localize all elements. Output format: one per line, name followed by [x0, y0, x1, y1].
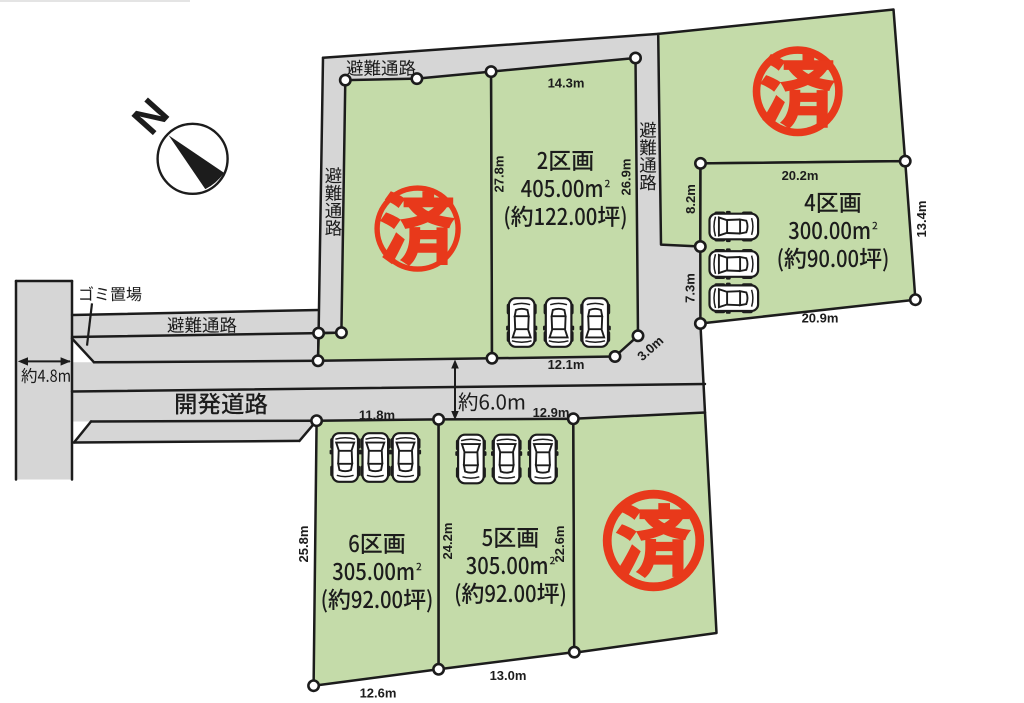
svg-text:13.0m: 13.0m — [490, 668, 527, 683]
svg-text:27.8m: 27.8m — [491, 156, 506, 193]
svg-text:12.1m: 12.1m — [548, 357, 585, 372]
svg-text:20.9m: 20.9m — [802, 311, 839, 326]
svg-text:26.9m: 26.9m — [619, 159, 634, 196]
svg-text:24.2m: 24.2m — [440, 523, 455, 560]
svg-text:13.4m: 13.4m — [914, 201, 929, 238]
svg-text:11.8m: 11.8m — [359, 408, 395, 423]
svg-text:7.3m: 7.3m — [683, 273, 698, 303]
svg-text:20.2m: 20.2m — [782, 168, 819, 183]
svg-text:12.9m: 12.9m — [533, 405, 570, 420]
svg-text:14.3m: 14.3m — [548, 76, 585, 91]
svg-text:12.6m: 12.6m — [360, 686, 397, 701]
svg-text:25.8m: 25.8m — [296, 526, 311, 563]
svg-text:22.6m: 22.6m — [552, 526, 567, 563]
svg-text:8.2m: 8.2m — [683, 184, 698, 214]
